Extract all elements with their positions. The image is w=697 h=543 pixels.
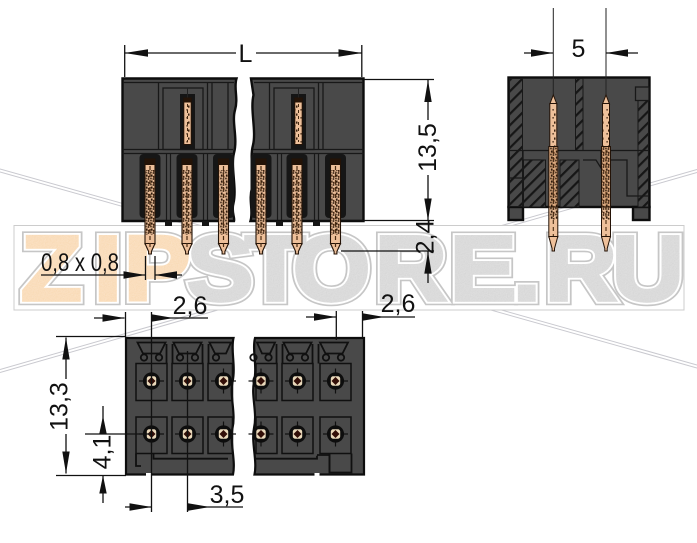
svg-text:L: L xyxy=(239,40,253,68)
svg-text:13,3: 13,3 xyxy=(46,382,74,431)
svg-text:13,5: 13,5 xyxy=(414,123,442,172)
svg-text:3,5: 3,5 xyxy=(210,481,245,509)
svg-text:ZIPSTORE.RU: ZIPSTORE.RU xyxy=(21,217,684,320)
svg-text:2,6: 2,6 xyxy=(381,290,416,318)
svg-text:5: 5 xyxy=(572,35,586,63)
svg-text:0,8 x 0,8: 0,8 x 0,8 xyxy=(41,249,119,277)
svg-text:2,6: 2,6 xyxy=(173,292,208,320)
svg-text:2,4: 2,4 xyxy=(412,220,440,255)
svg-text:4,1: 4,1 xyxy=(89,435,117,470)
